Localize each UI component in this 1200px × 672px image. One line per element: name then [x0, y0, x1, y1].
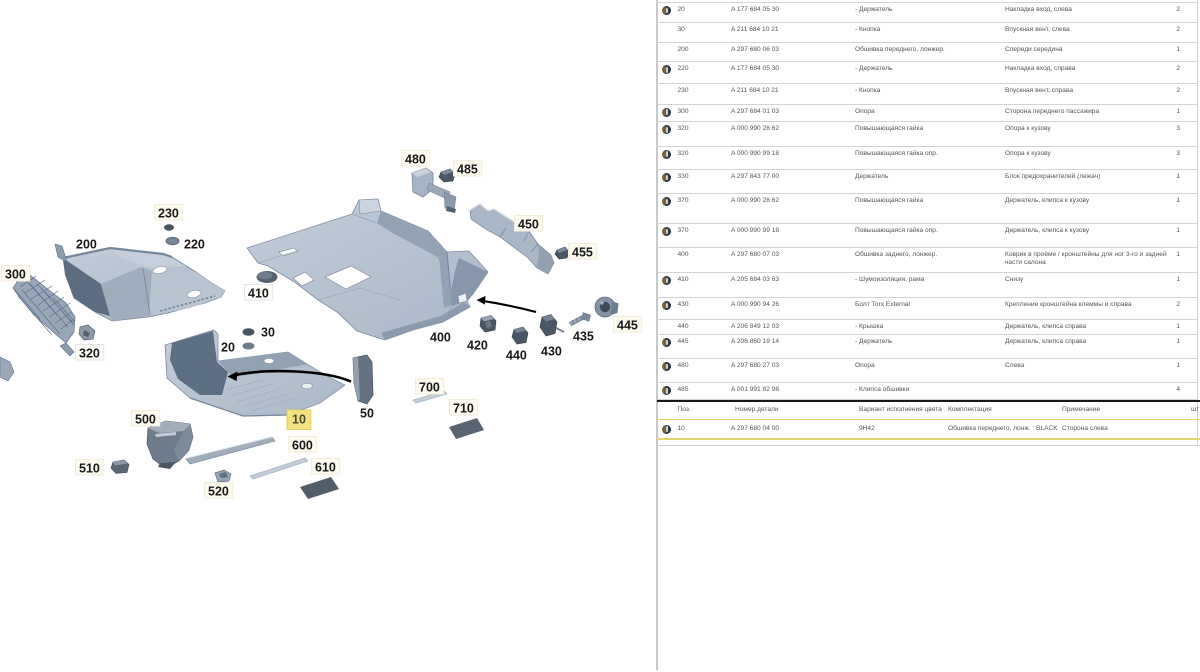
svg-text:600: 600: [292, 439, 313, 453]
svg-text:400: 400: [430, 331, 451, 345]
svg-text:445: 445: [617, 319, 638, 333]
svg-text:480: 480: [405, 153, 426, 167]
svg-text:450: 450: [518, 218, 539, 232]
svg-text:510: 510: [79, 462, 100, 476]
svg-text:300: 300: [5, 268, 26, 282]
svg-text:610: 610: [315, 461, 336, 475]
svg-text:410: 410: [248, 287, 269, 301]
svg-text:230: 230: [158, 207, 179, 221]
svg-text:50: 50: [360, 407, 374, 421]
svg-text:30: 30: [261, 326, 275, 340]
svg-text:485: 485: [457, 163, 478, 177]
svg-text:20: 20: [221, 341, 235, 355]
svg-text:10: 10: [292, 413, 306, 427]
svg-text:700: 700: [419, 381, 440, 395]
svg-text:520: 520: [208, 485, 229, 499]
svg-text:200: 200: [76, 238, 97, 252]
svg-text:430: 430: [541, 345, 562, 359]
svg-text:320: 320: [79, 347, 100, 361]
svg-text:440: 440: [506, 349, 527, 363]
svg-text:435: 435: [573, 330, 594, 344]
svg-text:220: 220: [184, 238, 205, 252]
svg-text:710: 710: [453, 402, 474, 416]
svg-text:500: 500: [135, 413, 156, 427]
svg-text:455: 455: [572, 246, 593, 260]
svg-text:420: 420: [467, 339, 488, 353]
